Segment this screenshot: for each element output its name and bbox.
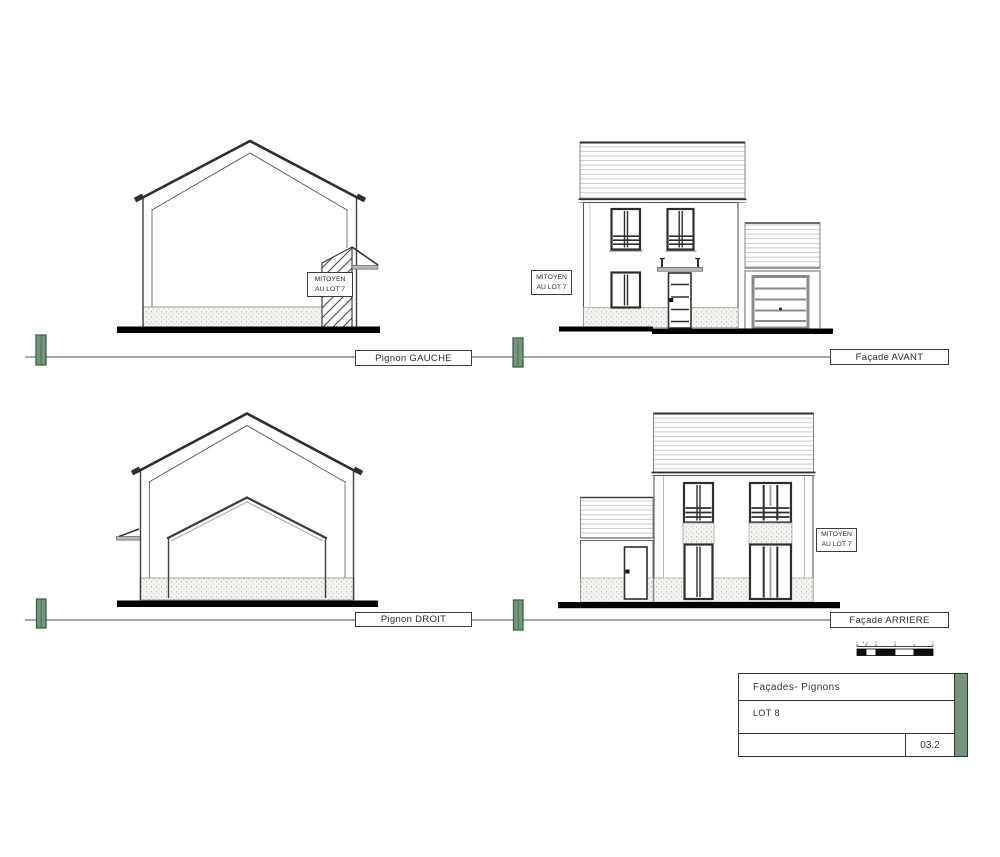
view-title-pignon-droit: Pignon DROIT	[355, 612, 472, 627]
roof-outer	[140, 141, 360, 199]
title-block: Façades- Pignons LOT 8 03.2	[738, 673, 968, 757]
view-pignon-gauche	[117, 141, 380, 333]
title-block-project-title: Façades- Pignons	[739, 674, 954, 701]
party-wall-note-pignon-gauche: MITOYEN AU LOT 7	[307, 272, 353, 297]
eave-end-right	[356, 194, 366, 203]
garage-door-handle	[779, 308, 782, 311]
party-wall-note-facade-arriere: MITOYEN AU LOT 7	[816, 528, 857, 552]
view-facade-avant	[559, 143, 833, 335]
window-upper-left	[609, 209, 643, 251]
garage	[745, 223, 820, 330]
door-handle	[669, 298, 673, 302]
roof	[654, 414, 814, 473]
scale-bar	[857, 642, 934, 656]
title-block-bottom-row: 03.2	[739, 734, 954, 756]
boundary-post	[37, 599, 47, 628]
plinth	[584, 308, 739, 328]
boundary-post	[514, 600, 524, 630]
view-title-pignon-gauche: Pignon GAUCHE	[355, 350, 472, 366]
party-wall-note-line1: MITOYEN	[536, 273, 567, 283]
window-upper-right	[750, 483, 791, 523]
title-block-empty-cell	[739, 734, 906, 756]
spandrel-right	[749, 523, 792, 544]
party-wall-note-line2: AU LOT 7	[315, 285, 345, 295]
spandrel-left	[683, 523, 714, 544]
party-wall-note-line2: AU LOT 7	[821, 540, 851, 550]
eave-end-left	[131, 467, 141, 476]
roof-inner	[149, 426, 345, 483]
entrance-door	[669, 273, 692, 328]
neighbour-gutter	[352, 266, 378, 270]
title-block-green-strip	[954, 674, 967, 756]
plinth	[140, 578, 354, 600]
french-door-lower-left	[685, 545, 713, 600]
title-block-lot: LOT 8	[739, 701, 954, 734]
door-handle	[626, 570, 630, 574]
garage	[581, 498, 654, 603]
ground-line	[652, 329, 833, 335]
view-pignon-droit	[117, 414, 379, 608]
party-wall-note-facade-avant: MITOYEN AU LOT 7	[531, 270, 572, 295]
title-block-fields: Façades- Pignons LOT 8 03.2	[739, 674, 954, 756]
french-door-lower-right	[750, 545, 791, 600]
boundary-post	[513, 338, 523, 367]
ground-line	[559, 327, 653, 332]
roof	[580, 143, 745, 199]
party-wall-note-line1: MITOYEN	[315, 275, 346, 285]
view-title-facade-avant: Façade AVANT	[830, 349, 949, 365]
eave-end-right	[353, 467, 363, 476]
ground-line	[117, 327, 380, 334]
roof-inner	[152, 153, 347, 210]
window-lower-left	[612, 273, 641, 308]
view-facade-arriere	[558, 414, 840, 609]
plinth	[143, 307, 322, 328]
title-block-sheet-number: 03.2	[906, 734, 954, 756]
ground-line	[558, 602, 840, 608]
party-wall-note-line2: AU LOT 7	[536, 283, 566, 293]
window-upper-left	[684, 483, 713, 523]
roof-outer	[137, 414, 357, 473]
ground-line	[117, 601, 378, 608]
window-upper-right	[666, 209, 697, 251]
left-canopy	[117, 529, 141, 540]
party-wall-note-line1: MITOYEN	[821, 530, 852, 540]
view-title-facade-arriere: Façade ARRIERE	[830, 612, 949, 628]
boundary-post	[36, 335, 46, 365]
drawing-sheet: Pignon GAUCHE Façade AVANT Pignon DROIT …	[0, 0, 1000, 857]
